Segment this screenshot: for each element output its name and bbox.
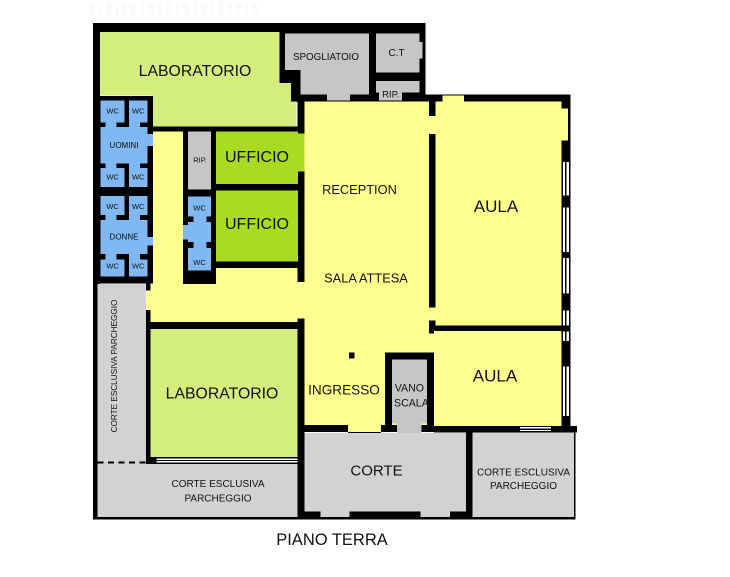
svg-text:RECEPTION: RECEPTION [322,182,397,197]
svg-text:INGRESSO: INGRESSO [308,383,380,398]
svg-text:WC: WC [193,204,206,213]
svg-text:PARCHEGGIO: PARCHEGGIO [490,481,557,492]
svg-text:LABORATORIO: LABORATORIO [139,63,252,80]
svg-text:WC: WC [132,262,145,271]
svg-text:CORTE ESCLUSIVA: CORTE ESCLUSIVA [172,479,265,490]
svg-text:LABORATORIO: LABORATORIO [166,386,279,403]
svg-text:WC: WC [132,107,145,116]
svg-text:PIANO TERRA: PIANO TERRA [276,531,388,549]
svg-text:WC: WC [106,173,119,182]
svg-text:CORTE ESCLUSIVA: CORTE ESCLUSIVA [477,467,570,478]
svg-text:UFFICIO: UFFICIO [225,149,289,166]
svg-text:AULA: AULA [473,366,518,385]
svg-text:AULA: AULA [474,197,519,216]
svg-text:UOMINI: UOMINI [110,141,139,150]
svg-text:CORTE: CORTE [350,463,402,480]
svg-text:C.T: C.T [388,48,404,59]
svg-text:SPOGLIATOIO: SPOGLIATOIO [293,52,359,63]
svg-text:RIP.: RIP. [382,89,399,100]
svg-text:WC: WC [132,173,145,182]
svg-text:WC: WC [106,262,119,271]
svg-text:UFFICIO: UFFICIO [225,216,289,233]
svg-text:RIP.: RIP. [193,156,207,165]
svg-text:WC: WC [106,107,119,116]
svg-text:WC: WC [106,202,119,211]
svg-text:SCALA: SCALA [394,398,430,410]
svg-text:PARCHEGGIO: PARCHEGGIO [184,494,251,505]
svg-text:WC: WC [193,258,206,267]
svg-text:CORTE ESCLUSIVA PARCHEGGIO: CORTE ESCLUSIVA PARCHEGGIO [110,300,119,433]
svg-text:WC: WC [132,202,145,211]
svg-text:SALA ATTESA: SALA ATTESA [324,271,408,286]
svg-text:DONNE: DONNE [110,233,139,242]
svg-text:VANO: VANO [395,382,424,394]
